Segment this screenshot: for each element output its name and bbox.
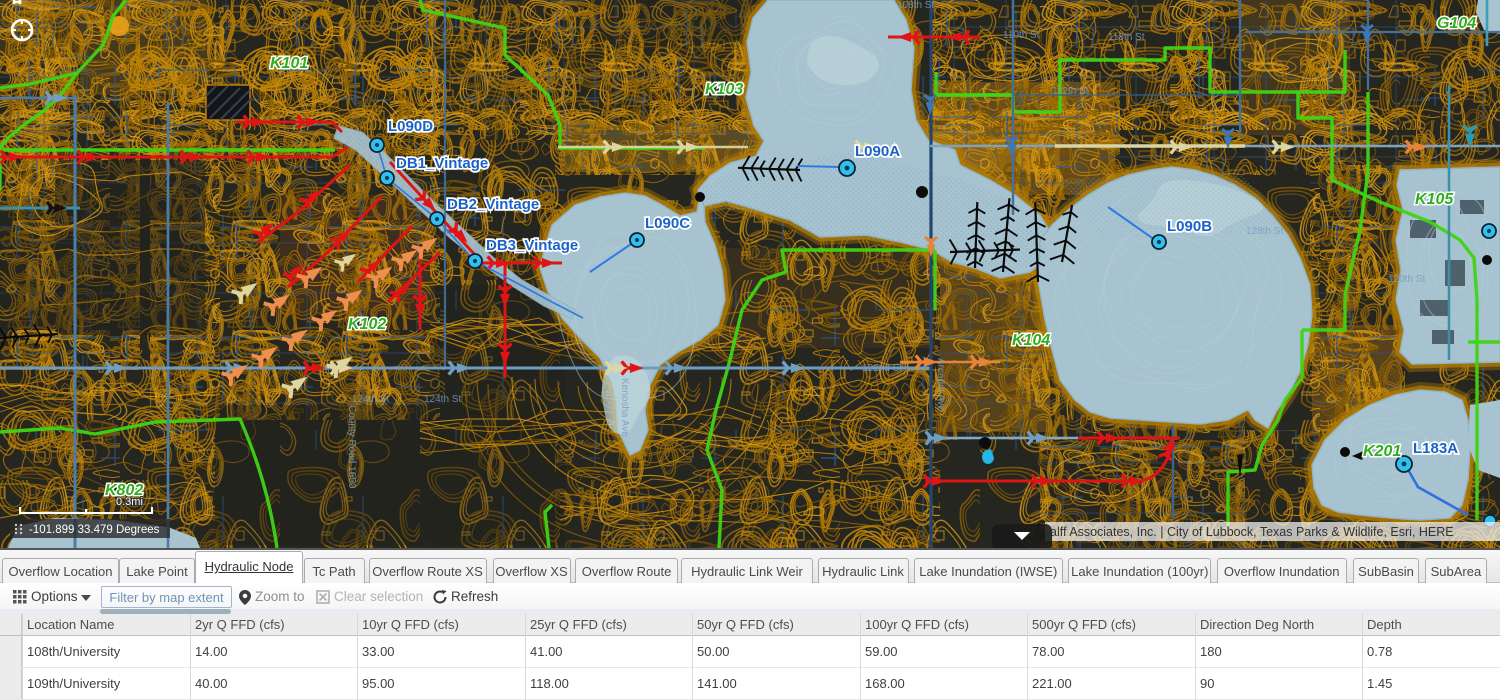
svg-text:County Road 1650: County Road 1650 xyxy=(346,405,357,489)
svg-text:-101.899 33.479 Degrees: -101.899 33.479 Degrees xyxy=(29,524,160,536)
svg-text:K103: K103 xyxy=(705,81,743,98)
svg-text:124th St: 124th St xyxy=(352,394,389,405)
svg-text:K104: K104 xyxy=(1012,332,1050,349)
svg-text:K105: K105 xyxy=(1415,191,1454,208)
svg-text:128th St: 128th St xyxy=(1246,226,1283,237)
svg-text:DB3_Vintage: DB3_Vintage xyxy=(486,237,578,254)
svg-text:Kenosha Ave: Kenosha Ave xyxy=(619,378,630,437)
svg-text:alff Associates, Inc. | City o: alff Associates, Inc. | City of Lubbock,… xyxy=(1050,525,1454,539)
svg-text:DB2_Vintage: DB2_Vintage xyxy=(447,196,539,213)
svg-text:L090B: L090B xyxy=(1167,218,1212,235)
svg-text:DB1_Vintage: DB1_Vintage xyxy=(396,155,488,172)
svg-text:K101: K101 xyxy=(270,55,308,72)
svg-text:K201: K201 xyxy=(1363,443,1401,460)
svg-text:L090A: L090A xyxy=(855,143,900,160)
svg-text:110th St: 110th St xyxy=(1003,30,1040,41)
svg-text:120th St: 120th St xyxy=(1388,274,1425,285)
svg-text:0.3mi: 0.3mi xyxy=(116,496,143,508)
svg-text:118th St: 118th St xyxy=(1108,32,1145,43)
svg-text:112th St: 112th St xyxy=(1052,86,1089,97)
svg-text:124th St: 124th St xyxy=(424,394,461,405)
svg-text:Arcadia Ave: Arcadia Ave xyxy=(935,358,946,412)
svg-text:L090C: L090C xyxy=(645,215,690,232)
svg-text:K102: K102 xyxy=(348,316,386,333)
svg-text:L183A: L183A xyxy=(1413,440,1458,457)
svg-text:108th St: 108th St xyxy=(897,0,934,11)
svg-text:G104: G104 xyxy=(1437,15,1476,32)
svg-text:122nd St: 122nd St xyxy=(862,363,902,374)
svg-text:L090D: L090D xyxy=(388,118,433,135)
